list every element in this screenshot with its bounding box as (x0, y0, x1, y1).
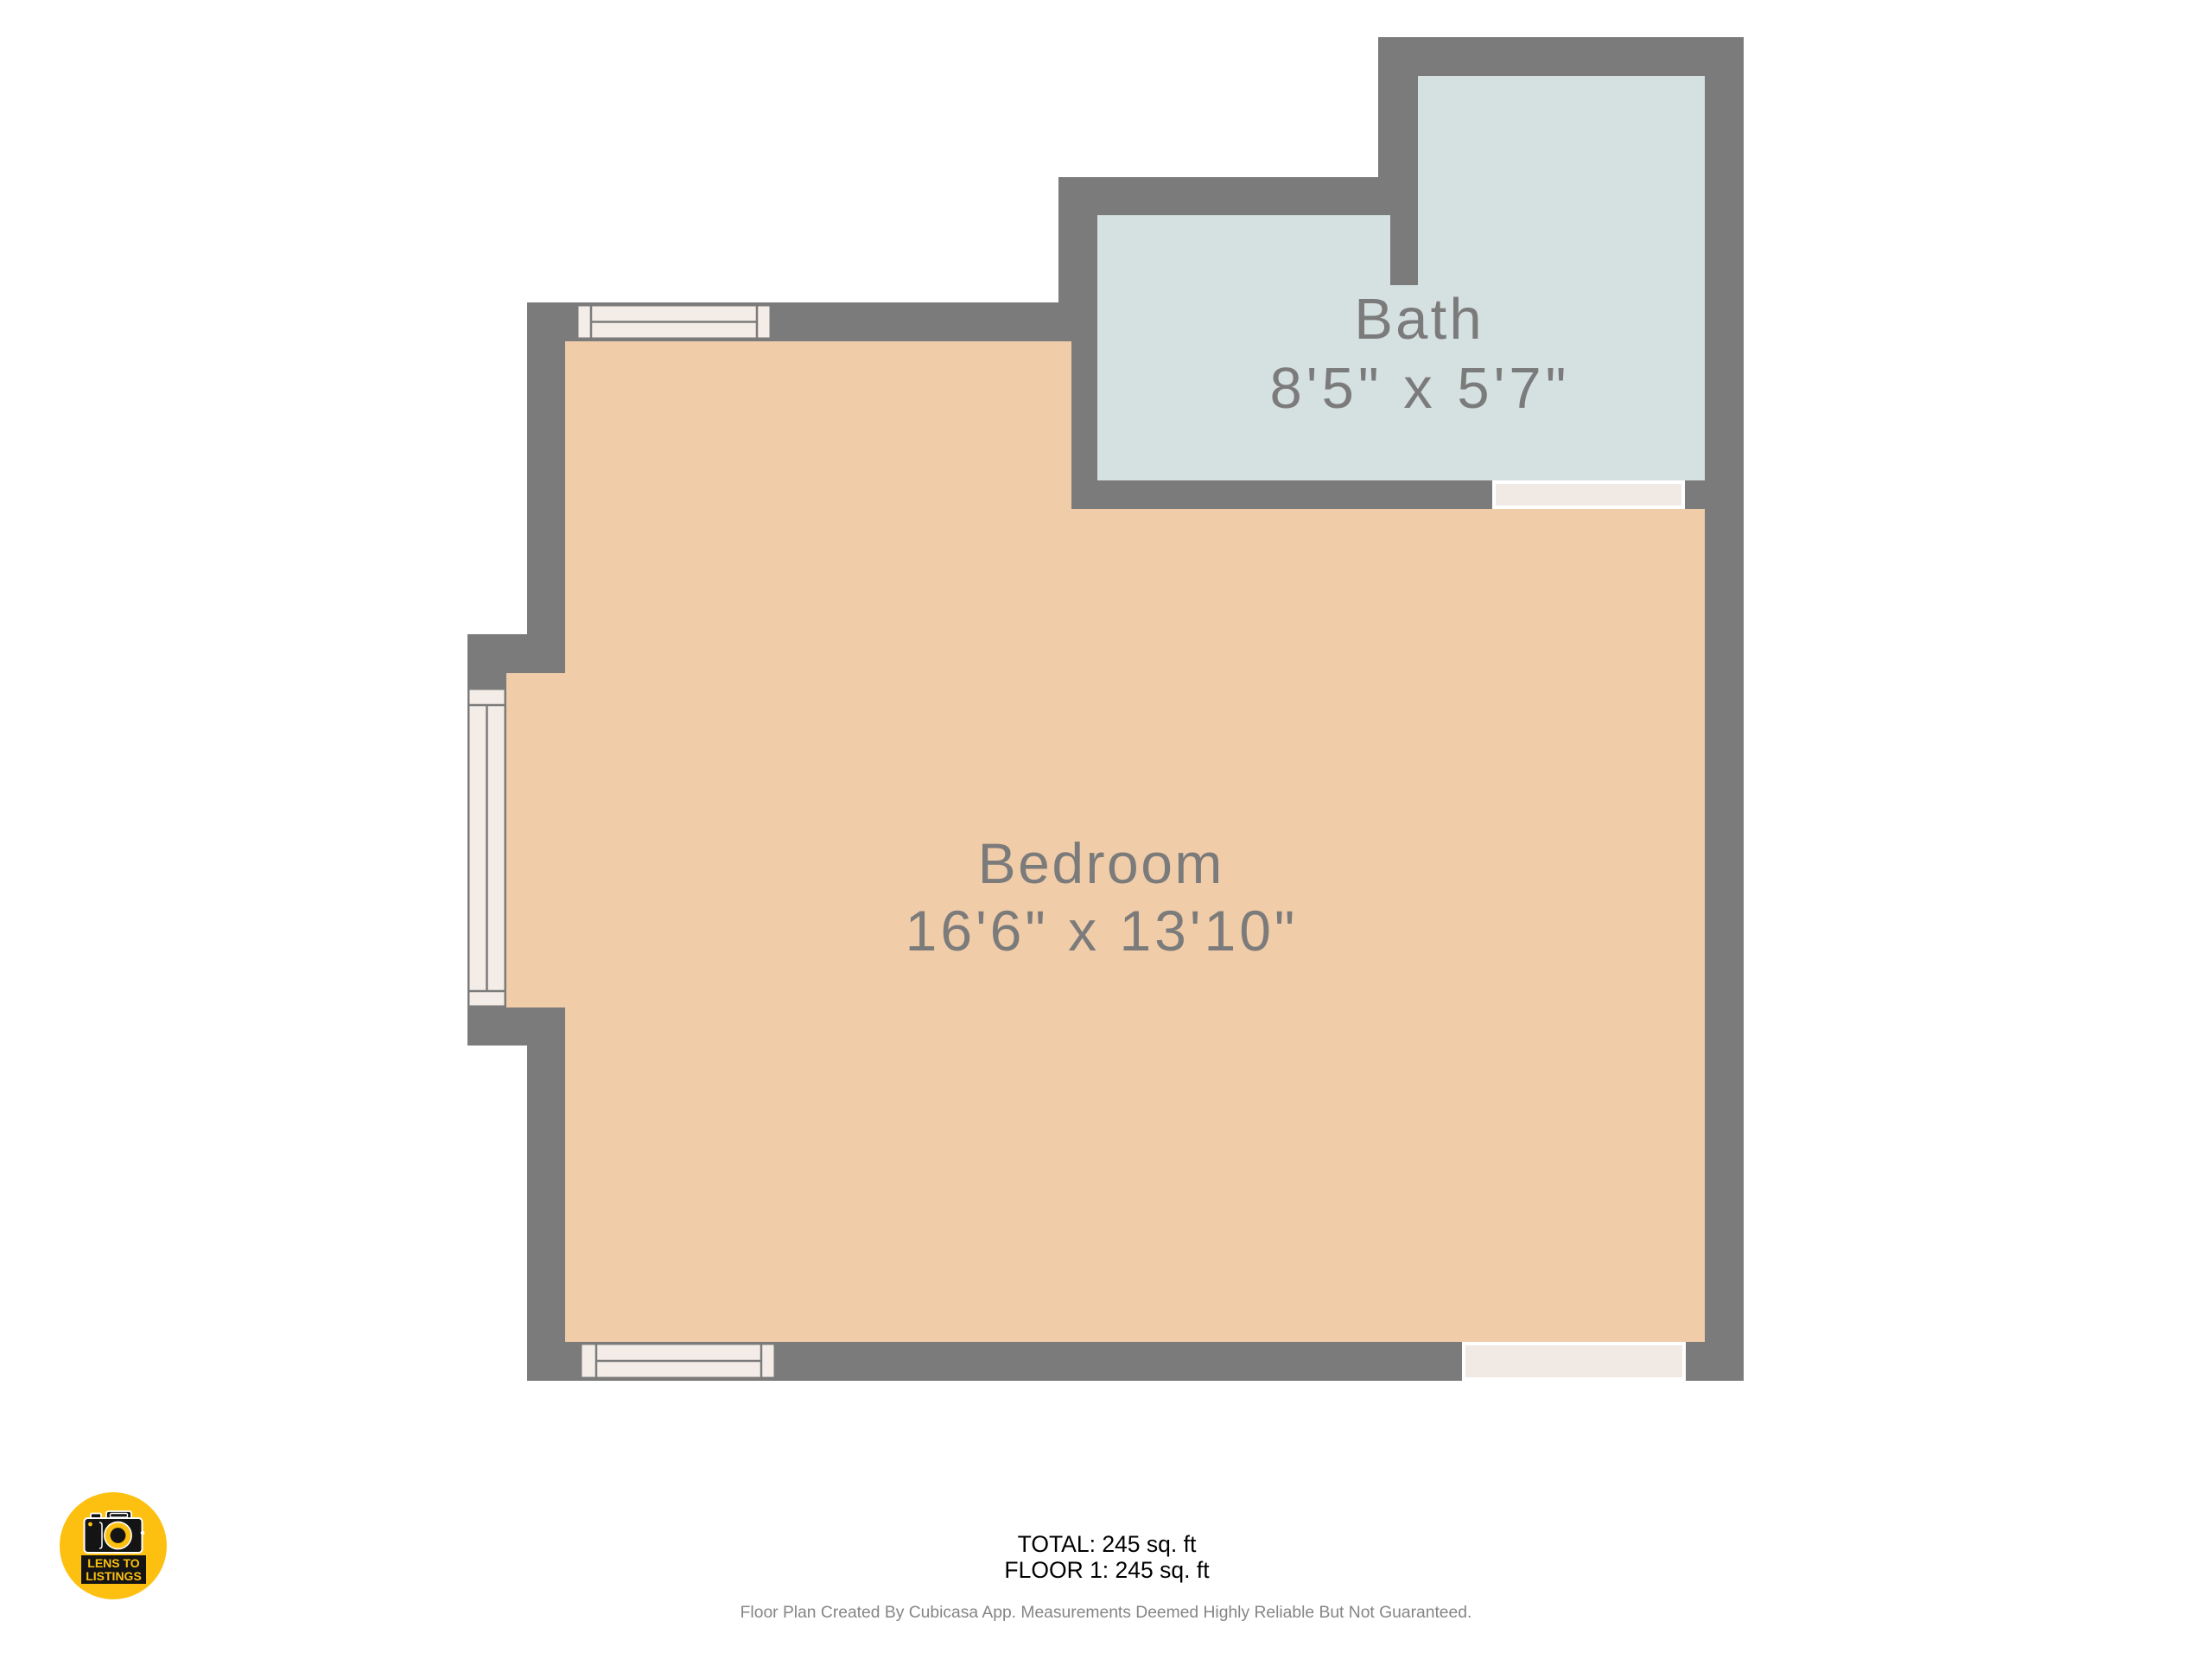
svg-text:LISTINGS: LISTINGS (86, 1569, 142, 1583)
svg-text:LENS TO: LENS TO (87, 1556, 140, 1570)
